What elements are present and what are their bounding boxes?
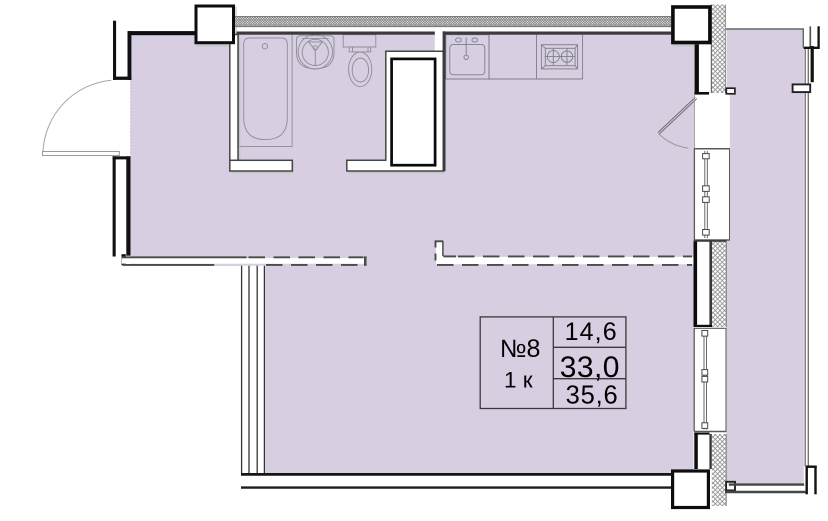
svg-text:14,6: 14,6	[565, 318, 618, 346]
svg-text:35,6: 35,6	[566, 382, 619, 410]
svg-text:№8: №8	[500, 335, 541, 363]
svg-text:1 к: 1 к	[504, 367, 533, 392]
svg-text:33,0: 33,0	[560, 351, 620, 384]
